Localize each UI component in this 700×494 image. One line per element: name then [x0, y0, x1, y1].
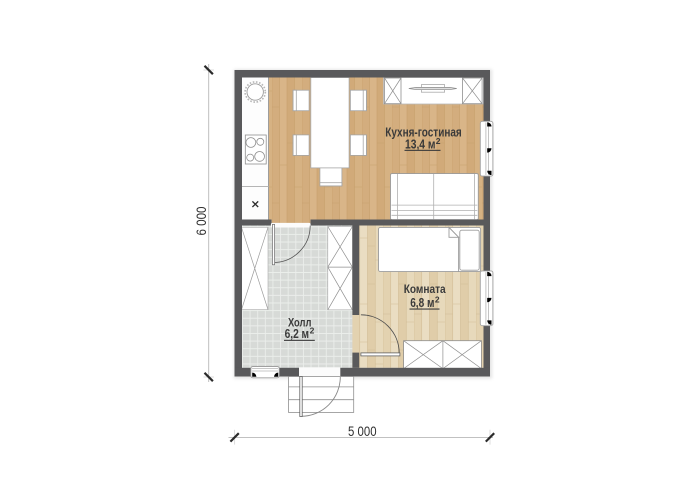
svg-text:Комната: Комната	[404, 284, 447, 296]
svg-text:6,2 м: 6,2 м	[285, 327, 310, 341]
svg-text:13,4 м: 13,4 м	[405, 138, 436, 152]
svg-text:6 000: 6 000	[193, 206, 209, 235]
svg-text:2: 2	[436, 136, 441, 146]
svg-text:6,8 м: 6,8 м	[410, 296, 434, 310]
svg-text:2: 2	[435, 294, 440, 304]
svg-text:2: 2	[310, 325, 315, 335]
svg-text:5 000: 5 000	[348, 423, 377, 439]
